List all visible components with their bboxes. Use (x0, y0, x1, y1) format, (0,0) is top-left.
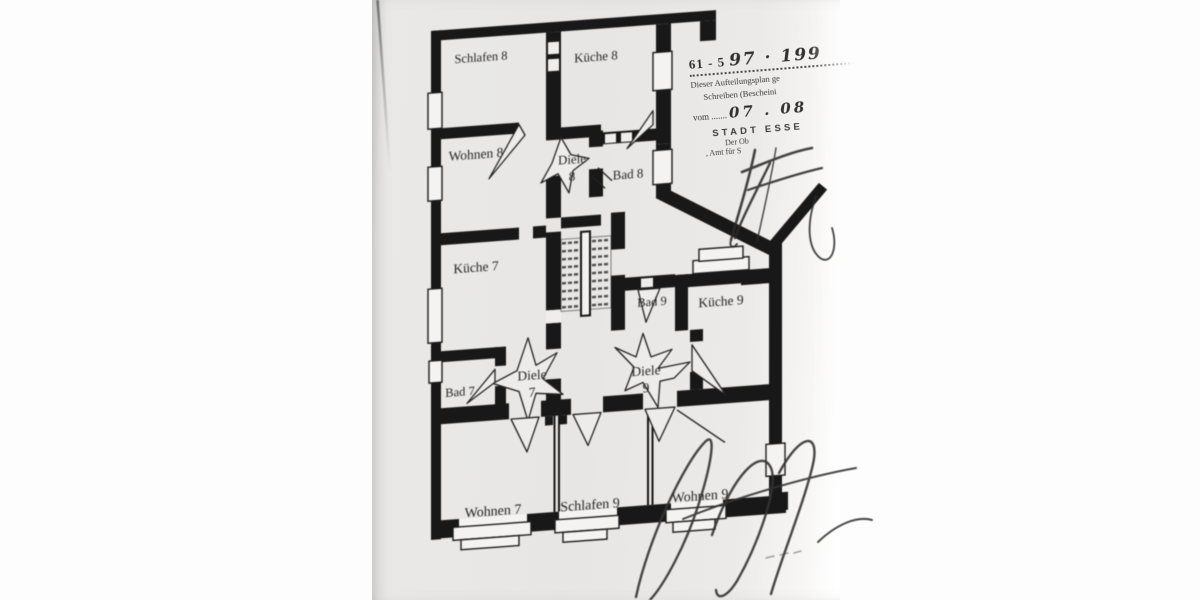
staircase (561, 230, 611, 318)
room-label-kueche-7: Küche 7 (453, 258, 499, 276)
paper-fold-line (378, 0, 391, 172)
floor-plan: Schlafen 8 Küche 8 Wohnen 8 Diele 8 Bad … (428, 2, 823, 552)
stair-stringer (581, 231, 590, 316)
room-label-schlafen-8: Schlafen 8 (454, 48, 507, 66)
room-label-kueche-9: Küche 9 (698, 292, 744, 310)
room-label-wohnen-8: Wohnen 8 (449, 145, 504, 164)
scanned-page: 61 - 5 97 · 199 Dieser Aufteilungsplan g… (0, 0, 1200, 600)
room-label-bad-9: Bad 9 (637, 294, 666, 310)
room-label-bad-8: Bad 8 (613, 165, 644, 182)
room-number-diele-9: 9 (643, 380, 650, 395)
room-label-kueche-8: Küche 8 (574, 47, 618, 65)
room-label-bad-7: Bad 7 (445, 384, 474, 400)
room-label-diele-7: Diele (517, 367, 546, 384)
room-number-diele-8: 8 (569, 168, 575, 183)
room-label-diele-8: Diele (558, 151, 586, 168)
floor-plan-svg: Schlafen 8 Küche 8 Wohnen 8 Diele 8 Bad … (0, 0, 1200, 600)
room-number-diele-7: 7 (529, 384, 536, 399)
room-label-diele-9: Diele (631, 362, 660, 379)
